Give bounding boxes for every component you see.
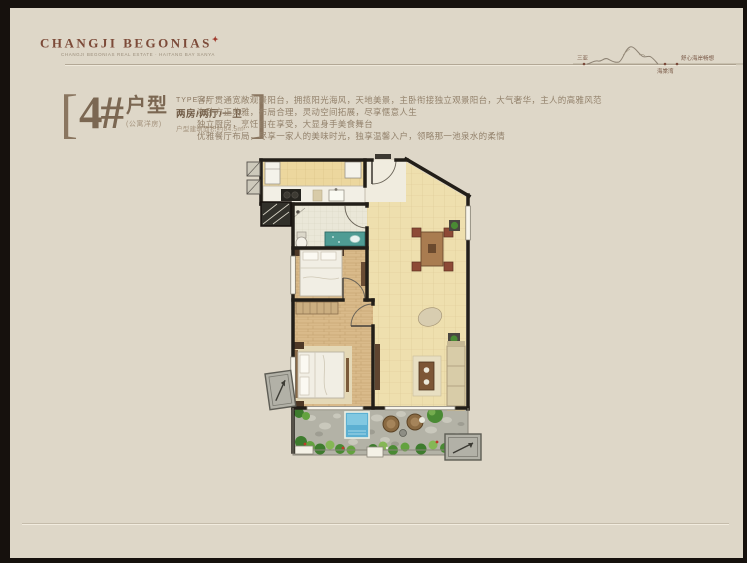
coffee-table — [419, 362, 434, 390]
brand-tagline: CHANGJI BEGONIAS REAL ESTATE · HAITANG B… — [43, 52, 233, 57]
rattan-chair-1 — [383, 416, 399, 432]
bath-sink — [350, 235, 360, 242]
kitchen-cabinet — [345, 162, 361, 178]
dining-chair — [412, 262, 421, 271]
copy-line-1: 客厅贯通宽敞观景阳台，拥揽阳光海风，天地美景，主卧衔接独立观景阳台，大气奢华，主… — [197, 94, 597, 106]
shower-head — [296, 210, 300, 214]
tray — [424, 367, 430, 373]
unit-number: 4# — [79, 92, 122, 134]
map-label-right: 舒心海岸畅想 — [681, 54, 715, 62]
balcony-slider-left — [307, 406, 363, 409]
white-flowers — [419, 417, 425, 423]
garden-table — [400, 430, 407, 437]
window-dining — [466, 206, 471, 240]
unit-subtitle: (公寓洋房) — [126, 119, 168, 129]
pillow — [300, 355, 309, 373]
floor-plan — [225, 152, 535, 472]
map-label-left: 三亚 — [577, 55, 589, 62]
dining-chair — [444, 262, 453, 271]
refrigerator — [265, 162, 280, 184]
entry-direction-icon-left — [265, 370, 296, 409]
marker-dot-left — [583, 63, 586, 66]
copy-line-2: 次卧方正典雅，布局合理，灵动空间拓展，尽享惬意人生 — [197, 106, 597, 118]
marketing-copy: 客厅贯通宽敞观景阳台，拥揽阳光海风，天地美景，主卧衔接独立观景阳台，大气奢华，主… — [197, 94, 597, 142]
tray — [424, 379, 430, 385]
kitchen-sink — [329, 190, 344, 201]
pillow — [321, 252, 336, 260]
balcony-slider-right — [385, 406, 455, 409]
footer-divider — [22, 523, 729, 524]
brand-logo-text: CHANGJI BEGONIAS — [40, 35, 212, 50]
entry-floor — [365, 160, 406, 202]
brand-logo-flower-icon: ✦ — [212, 35, 219, 44]
copy-line-3: 独立厨房，烹饪自在享受，大显身手美食舞台 — [197, 118, 597, 130]
unit-type-word: 户型 — [126, 96, 168, 116]
table-centerpiece — [428, 244, 436, 253]
red-flower-1 — [304, 443, 307, 446]
pool-highlight — [347, 414, 367, 425]
faucet — [335, 188, 338, 191]
ac-unit-top — [375, 154, 391, 159]
sofa — [447, 346, 465, 406]
marker-dot-peak — [664, 63, 667, 66]
pillow — [303, 252, 318, 260]
map-label-peak: 海棠湾 — [657, 67, 674, 75]
red-flower-3 — [436, 441, 439, 444]
window-bedroom2 — [291, 256, 296, 294]
potted-plant-icon — [451, 222, 458, 229]
cutting-board — [313, 190, 322, 201]
dining-chair — [412, 228, 421, 237]
nightstand — [294, 342, 304, 349]
poster-page: CHANGJI BEGONIAS✦ CHANGJI BEGONIAS REAL … — [10, 8, 743, 558]
balcony-step-left — [295, 446, 313, 454]
brand-logo: CHANGJI BEGONIAS✦ — [40, 35, 219, 51]
entry-direction-icon-bottom — [445, 434, 481, 460]
red-flower-2 — [342, 447, 345, 450]
tv-console — [375, 344, 380, 390]
mountain-sketch: 三亚 海棠湾 舒心海岸畅想 — [573, 40, 743, 88]
marker-dot-right — [676, 63, 679, 66]
service-shaft — [261, 202, 291, 226]
balcony-step-center — [367, 447, 383, 457]
bed-bench — [346, 358, 349, 392]
mountain-ridge — [587, 47, 658, 64]
pillow — [300, 377, 309, 395]
bracket-left: [ — [60, 92, 78, 136]
sofa-armrest — [447, 341, 465, 346]
copy-line-4: 优雅餐厅布局，尽享一家人的美味时光，独享温馨入户，领略那一池泉水的柔情 — [197, 130, 597, 142]
